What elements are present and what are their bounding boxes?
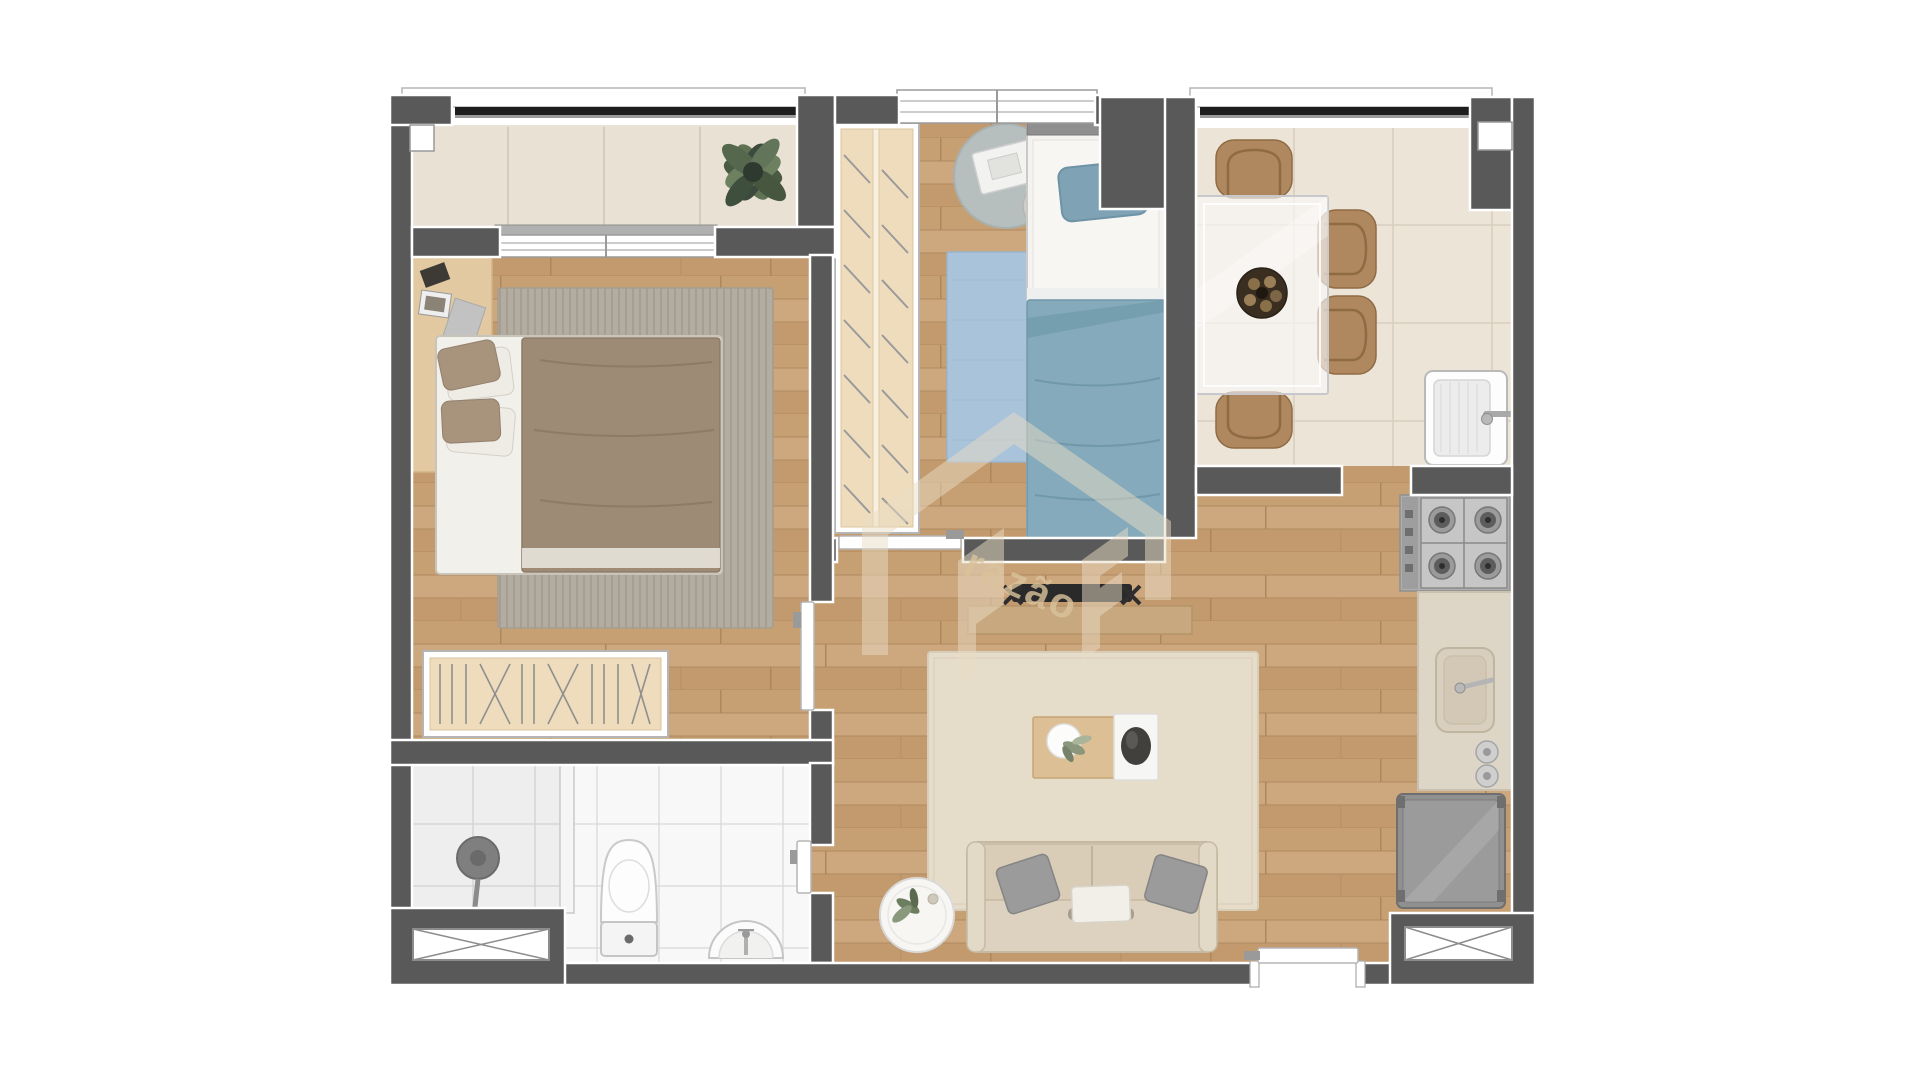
toilet <box>601 840 657 956</box>
wall-top-left-corner <box>390 95 452 125</box>
wall-top-right-corner <box>1470 97 1512 210</box>
blue-blanket <box>1027 300 1165 538</box>
dining-ledge <box>1190 88 1492 107</box>
fruit-bowl <box>1237 268 1287 318</box>
column-notch-right <box>1478 122 1512 150</box>
door-threshold-bathroom <box>810 845 833 893</box>
balcony-railing <box>455 107 797 115</box>
entry-door <box>1244 948 1365 987</box>
wall-balcony-bedroom2 <box>797 95 835 227</box>
gas-cooktop <box>1400 495 1510 591</box>
burner <box>1429 507 1455 533</box>
floor-plan-canvas: razão <box>0 0 1920 1080</box>
wall-bedroom1-bathroom <box>390 740 833 765</box>
wall-bedroom2-dining <box>1165 97 1196 538</box>
kitchen-counter <box>1418 592 1512 790</box>
double-bed <box>436 336 722 574</box>
shower-floor-shade <box>412 763 564 908</box>
laundry-tub <box>1425 371 1512 465</box>
wall-laundry-kitchen <box>1411 466 1512 495</box>
wall-bedroom1-living <box>810 255 833 602</box>
floor-plan: razão <box>0 0 1920 1080</box>
burner <box>1475 553 1501 579</box>
wall-dining-living <box>1196 466 1342 495</box>
vent-shaft-left <box>413 929 549 960</box>
dining-chair <box>1216 140 1292 198</box>
wall-right-outer <box>1512 97 1535 985</box>
wall-bedroom1-window-right <box>715 227 835 257</box>
column-notch-left <box>410 125 434 151</box>
wardrobe <box>835 123 919 533</box>
wall-bedroom2-window-left <box>835 95 899 125</box>
sofa-pillow-white <box>1071 885 1130 923</box>
wall-left-outer <box>390 95 412 985</box>
wall-bedroom1-window-left <box>412 227 500 257</box>
bedroom1-window <box>495 225 717 257</box>
burner <box>1475 507 1501 533</box>
shower-partition <box>560 763 574 913</box>
dining-chair <box>1216 392 1292 448</box>
open-hanger-rack <box>423 651 668 737</box>
refrigerator <box>1397 794 1505 908</box>
wall-bathroom-right-upper <box>810 763 833 845</box>
round-side-table <box>880 878 954 952</box>
wall-bathroom-right-lower <box>810 893 833 963</box>
tv-console <box>968 606 1192 634</box>
burner <box>1429 553 1455 579</box>
dining-railing <box>1200 107 1470 115</box>
coffee-table <box>1033 714 1158 780</box>
vent-shaft-right <box>1405 927 1512 960</box>
bedroom2-window <box>897 90 1097 123</box>
balcony-ledge <box>402 88 805 107</box>
sofa <box>967 842 1217 952</box>
